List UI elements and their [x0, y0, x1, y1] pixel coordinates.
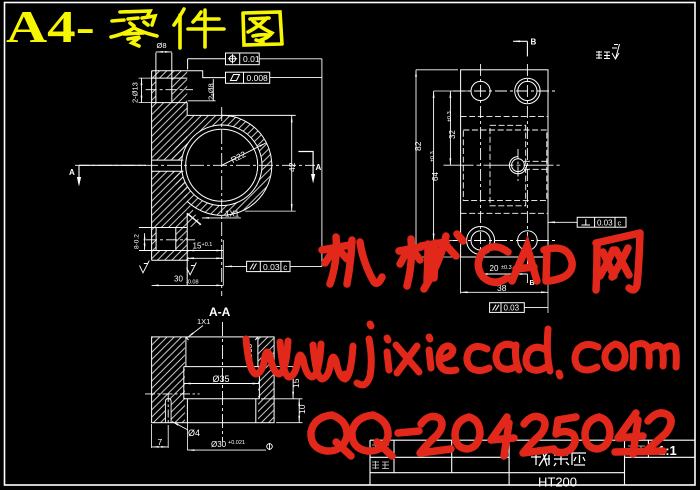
svg-text:0.03: 0.03 — [504, 304, 520, 313]
svg-text:±0.3: ±0.3 — [430, 151, 436, 162]
svg-text:2-Ø8: 2-Ø8 — [206, 83, 215, 100]
svg-text:15: 15 — [291, 378, 301, 388]
svg-text:A: A — [69, 168, 75, 177]
svg-text:c: c — [283, 263, 287, 272]
svg-text:1X1: 1X1 — [197, 317, 210, 326]
svg-text:64: 64 — [431, 172, 440, 181]
svg-text:Ø35: Ø35 — [213, 374, 230, 384]
svg-text:+0.1: +0.1 — [202, 242, 213, 248]
svg-text:32: 32 — [448, 130, 457, 139]
svg-text:A: A — [316, 163, 322, 172]
svg-text:0.008: 0.008 — [247, 73, 269, 83]
svg-text:1X1: 1X1 — [225, 210, 240, 219]
svg-text:10: 10 — [297, 404, 307, 414]
svg-text:2-Ø13: 2-Ø13 — [131, 82, 140, 103]
svg-text:Ø8: Ø8 — [157, 41, 167, 50]
svg-text:c: c — [618, 219, 622, 228]
svg-text:A-A: A-A — [209, 305, 231, 319]
svg-text:82: 82 — [413, 141, 423, 151]
svg-text:-0.08: -0.08 — [186, 280, 199, 286]
svg-text:7: 7 — [158, 437, 163, 447]
svg-text:Ø4: Ø4 — [188, 428, 200, 438]
svg-text:Ø30: Ø30 — [211, 440, 227, 449]
svg-text:8-0.2: 8-0.2 — [134, 234, 141, 249]
svg-text:±0.3: ±0.3 — [501, 265, 512, 271]
svg-text:30: 30 — [174, 275, 183, 284]
svg-text:0.01: 0.01 — [243, 54, 260, 64]
svg-text:HT200: HT200 — [538, 475, 577, 490]
svg-text:A4-: A4- — [6, 2, 95, 53]
svg-text:20: 20 — [490, 264, 499, 273]
svg-text:+0.021: +0.021 — [228, 440, 245, 446]
svg-text:0.03: 0.03 — [597, 219, 613, 228]
svg-text:B: B — [531, 38, 537, 47]
svg-text:0.03: 0.03 — [263, 262, 280, 272]
